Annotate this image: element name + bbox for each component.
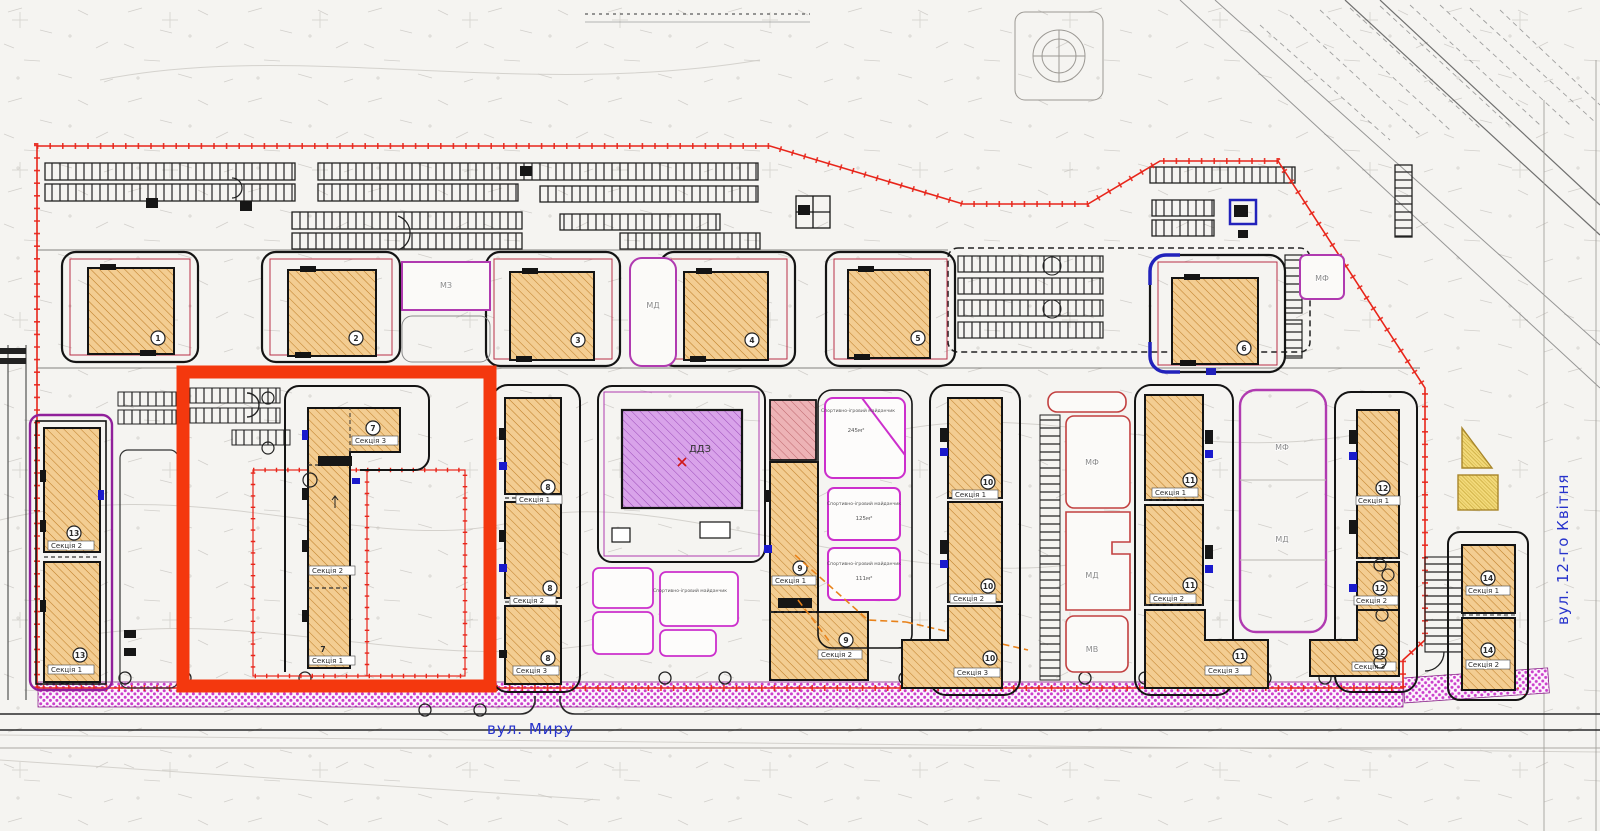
building-11-section-1-label: Секція 1 xyxy=(1155,489,1186,497)
building-12-section-1-label: Секція 1 xyxy=(1358,497,1389,505)
building-11-section-2-label: Секція 2 xyxy=(1153,595,1184,603)
master-plan-drawing: вул. Миру вул. 12-го Квітня xyxy=(0,0,1600,831)
plots-parking xyxy=(1040,415,1060,680)
kindergarten-label: ДДЗ xyxy=(689,444,711,455)
plot-md-large-label-1: МФ xyxy=(1275,443,1289,452)
building-12-number-s1: 12 xyxy=(1378,484,1388,493)
street-label-miru: вул. Миру xyxy=(487,720,574,738)
building-10-section-1-label: Секція 1 xyxy=(955,491,986,499)
building-9-number-s1: 9 xyxy=(797,564,802,573)
building-13-section-2-label: Секція 2 xyxy=(51,542,82,550)
building-5-number: 5 xyxy=(915,334,920,343)
building-9-number-s2: 9 xyxy=(843,636,848,645)
building-8-section-1-label: Секція 1 xyxy=(519,496,550,504)
building-8-section-2-label: Секція 2 xyxy=(513,597,544,605)
building-11-section-3-label: Секція 3 xyxy=(1208,667,1239,675)
plot-mf-small: МФ xyxy=(1300,255,1344,299)
building-7-section-1-label: Секція 1 xyxy=(312,657,343,665)
plot-mz-label: МЗ xyxy=(440,281,452,290)
building-14-number-s1: 14 xyxy=(1483,574,1493,583)
building-14-section-2-label: Секція 2 xyxy=(1468,661,1499,669)
building-2-number: 2 xyxy=(353,334,358,343)
building-8-number-s1: 8 xyxy=(545,483,550,492)
building-14-number-s2: 14 xyxy=(1483,646,1493,655)
site-plan-canvas: вул. Миру вул. 12-го Квітня xyxy=(0,0,1600,831)
central-playgrounds: Спортивно-ігровий майданчик xyxy=(593,568,738,656)
building-10-section-3-label: Секція 3 xyxy=(957,669,988,677)
building-14-section-1-label: Секція 1 xyxy=(1468,587,1499,595)
building-11-number-s3: 11 xyxy=(1235,652,1245,661)
building-12-number-s2: 12 xyxy=(1375,584,1385,593)
building-7-section-3-label: Секція 3 xyxy=(355,437,386,445)
building-6-number: 6 xyxy=(1241,344,1246,353)
playground-label-low: Спортивно-ігровий майданчик xyxy=(827,560,901,567)
plot-mf-small-label: МФ xyxy=(1315,274,1329,283)
building-12-section-3-label: Секція 3 xyxy=(1354,663,1385,671)
street-label-12-kvitnya: вул. 12-го Квітня xyxy=(1554,474,1572,625)
playground-center-label: Спортивно-ігровий майданчик xyxy=(653,587,727,594)
building-10-number-s2: 10 xyxy=(983,582,993,591)
plot-md-top: МД xyxy=(630,258,676,366)
building-11-number-s1: 11 xyxy=(1185,476,1195,485)
building-13-number-s1: 13 xyxy=(75,651,85,660)
plot-md-label: МД xyxy=(1085,571,1098,580)
building-13-number-s2: 13 xyxy=(69,529,79,538)
building-1-number: 1 xyxy=(155,334,160,343)
playground-label-top: Спортивно-ігровий майданчик xyxy=(821,407,895,414)
building-7-section-2-label: Секція 2 xyxy=(312,567,343,575)
building-4-number: 4 xyxy=(749,336,754,345)
plot-mv-label: МВ xyxy=(1086,645,1098,654)
building-7-number-s3: 7 xyxy=(370,424,375,433)
annex-rose-block xyxy=(770,400,816,460)
building-10-number-s3: 10 xyxy=(985,654,995,663)
building-10-section-2-label: Секція 2 xyxy=(953,595,984,603)
playground-area-top: 245м² xyxy=(848,427,865,434)
plot-md-large-label-2: МД xyxy=(1275,535,1288,544)
building-12-section-2-label: Секція 2 xyxy=(1356,597,1387,605)
building-7-number-s1: 7 xyxy=(320,645,325,654)
building-9-section-2-label: Секція 2 xyxy=(821,651,852,659)
building-8-section-3-label: Секція 3 xyxy=(516,667,547,675)
building-10-number-s1: 10 xyxy=(983,478,993,487)
playground-area-low: 111м² xyxy=(856,575,873,582)
playground-area-mid: 125м² xyxy=(856,515,873,522)
building-9-section-1-label: Секція 1 xyxy=(775,577,806,585)
playground-label-mid: Спортивно-ігровий майданчик xyxy=(827,500,901,507)
building-11-number-s2: 11 xyxy=(1185,581,1195,590)
building-8-number-s2: 8 xyxy=(547,584,552,593)
building-13-section-1-label: Секція 1 xyxy=(51,666,82,674)
plot-md-top-label: МД xyxy=(646,301,659,310)
building-3-number: 3 xyxy=(575,336,580,345)
building-8-number-s3: 8 xyxy=(545,654,550,663)
plot-mf-label: МФ xyxy=(1085,458,1099,467)
